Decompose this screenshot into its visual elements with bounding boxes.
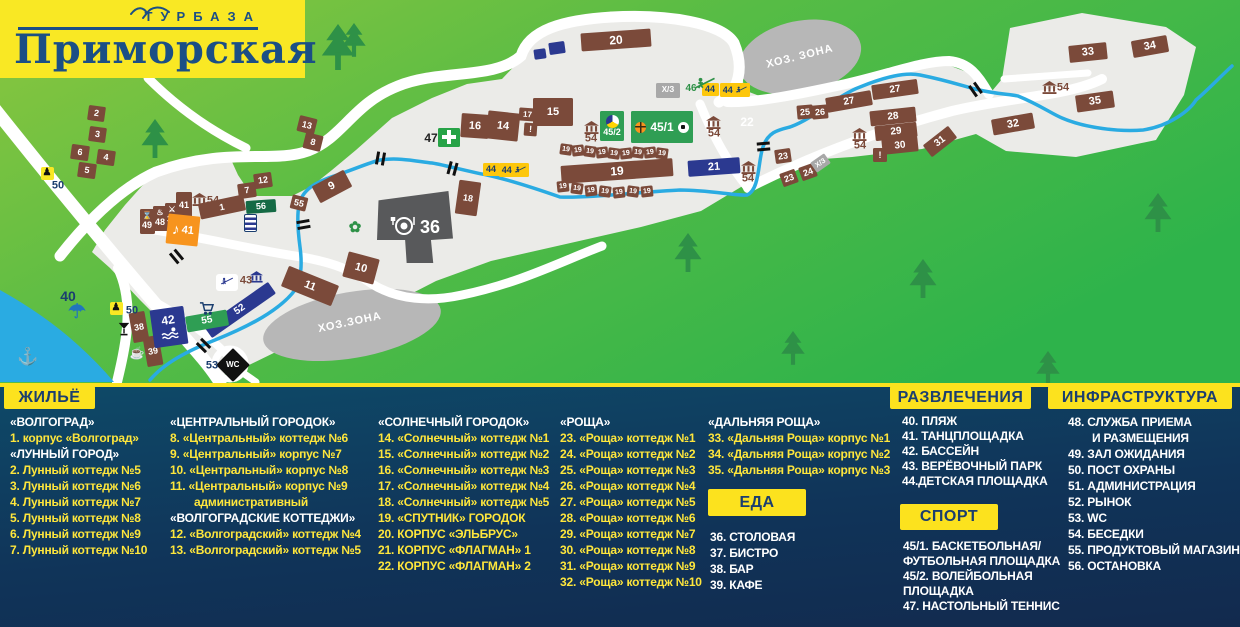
legend-item: 28. «Роща» коттедж №6 xyxy=(560,510,702,526)
slide-icon xyxy=(514,165,527,176)
legend-item: «ЦЕНТРАЛЬНЫЙ ГОРОДОК» xyxy=(170,414,361,430)
marker-label: 50 xyxy=(52,181,64,192)
marker-label: 28 xyxy=(887,110,899,121)
basketball-icon xyxy=(635,122,646,133)
building-2: 2 xyxy=(87,104,106,121)
security-post-icon: ♟ xyxy=(110,302,123,315)
legend-item: 54. БЕСЕДКИ xyxy=(1068,526,1240,542)
building-block xyxy=(548,41,566,55)
building-44: 44 xyxy=(483,163,500,176)
legend-item: 51. АДМИНИСТРАЦИЯ xyxy=(1068,478,1240,494)
building-5: 5 xyxy=(77,161,97,178)
legend-item: 36. СТОЛОВАЯ xyxy=(710,529,795,545)
legend-item: 12. «Волгоградский» коттедж №4 xyxy=(170,526,361,542)
legend-item: 7. Лунный коттедж №10 xyxy=(10,542,147,558)
building-19: 19 xyxy=(640,185,653,197)
marker-label: 25 xyxy=(800,107,811,117)
dining-icon xyxy=(390,213,416,242)
marker-label: 44 xyxy=(502,166,512,175)
music-note-icon: ♪ xyxy=(171,221,180,237)
marker-label: 49 xyxy=(142,221,152,230)
label-54: 54 xyxy=(708,129,720,140)
legend-item: 10. «Центральный» корпус №8 xyxy=(170,462,361,478)
legend-block-1: «ВОЛГОГРАД»1. корпус «Волгоград»«ЛУННЫЙ … xyxy=(10,414,147,558)
marker-label: 19 xyxy=(562,145,571,153)
building-3: 3 xyxy=(88,125,107,142)
marker-label: 18 xyxy=(462,193,473,203)
legend-block-5: «ДАЛЬНЯЯ РОЩА»33. «Дальняя Роща» корпус … xyxy=(708,414,890,478)
marker-label: 26 xyxy=(815,107,826,117)
legend-item: 24. «Роща» коттедж №2 xyxy=(560,446,702,462)
legend-item: 15. «Солнечный» коттедж №2 xyxy=(378,446,549,462)
marker-label: 19 xyxy=(610,165,624,178)
volleyball-court-45-2: 45/2 xyxy=(600,111,624,141)
swimming-pool-42: 42 xyxy=(150,306,189,348)
building-19: 19 xyxy=(570,182,583,195)
legend-item: ПЛОЩАДКА xyxy=(903,584,1060,599)
legend-item: 13. «Волгоградский» коттедж №5 xyxy=(170,542,361,558)
legend-item: 44.ДЕТСКАЯ ПЛОЩАДКА xyxy=(902,474,1048,489)
pine-tree-icon xyxy=(673,233,703,272)
marker-label: 19 xyxy=(574,146,582,154)
legend-item: 33. «Дальняя Роща» корпус №1 xyxy=(708,430,890,446)
marker-label: 30 xyxy=(894,139,906,150)
legend-item: 49. ЗАЛ ОЖИДАНИЯ xyxy=(1068,446,1240,462)
marker-label: 27 xyxy=(843,95,856,107)
marker-label: 55 xyxy=(293,197,305,208)
marker-label: 19 xyxy=(643,187,651,195)
marker-label: 19 xyxy=(629,187,638,195)
resort-map-poster: ХОЗ. ЗОНАХОЗ.ЗОНА12345671281391011141516… xyxy=(0,0,1240,627)
medical-cross-icon xyxy=(442,130,456,144)
building-19: 19 xyxy=(559,143,572,156)
logo-subtitle: ТУРБАЗА xyxy=(145,9,261,24)
label-47: 47 xyxy=(424,132,437,144)
marker-label: 24 xyxy=(802,166,814,178)
legend-item: 30. «Роща» коттедж №8 xyxy=(560,542,702,558)
climber-icon xyxy=(697,75,713,91)
label-54: 54 xyxy=(207,196,219,207)
legend-item: 40. ПЛЯЖ xyxy=(902,414,1048,429)
building-15: 15 xyxy=(533,98,573,126)
marker-label: 6 xyxy=(77,147,83,157)
playground-44: 44 xyxy=(720,83,750,97)
legend-item: 50. ПОСТ ОХРАНЫ xyxy=(1068,462,1240,478)
legend-chip-2: РАЗВЛЕЧЕНИЯ xyxy=(890,386,1031,409)
marker-label: 45/2 xyxy=(603,128,621,137)
legend-item: 21. КОРПУС «ФЛАГМАН» 1 xyxy=(378,542,549,558)
flower-icon: ✿ xyxy=(348,220,363,235)
sports-court-45-1: 45/1 xyxy=(631,111,693,143)
legend-block-3: «СОЛНЕЧНЫЙ ГОРОДОК»14. «Солнечный» котте… xyxy=(378,414,549,574)
marker-label: 50 xyxy=(126,306,138,317)
building-6: 6 xyxy=(70,143,90,160)
marker-label: 19 xyxy=(646,148,654,156)
legend-item: 55. ПРОДУКТОВЫЙ МАГАЗИН xyxy=(1068,542,1240,558)
label-54: 54 xyxy=(742,174,754,185)
bridge-marks xyxy=(296,217,311,230)
marker-label: 34 xyxy=(1143,40,1157,53)
marker-label: 35 xyxy=(1088,95,1102,108)
legend-item: 4. Лунный коттедж №7 xyxy=(10,494,147,510)
person-icon: ♟ xyxy=(112,303,121,313)
legend-item: 52. РЫНОК xyxy=(1068,494,1240,510)
legend-chip-1: ЖИЛЬЁ xyxy=(4,386,95,409)
marker-label: 9 xyxy=(327,180,338,193)
marker-label: 54 xyxy=(742,174,754,185)
marker-label: 19 xyxy=(601,187,610,195)
marker-label: 23 xyxy=(777,151,788,161)
slide-icon xyxy=(735,85,748,96)
marker-label: 33 xyxy=(1081,46,1094,58)
marker-label: 41 xyxy=(181,224,194,236)
label-46: 46 xyxy=(685,84,696,94)
coffee-icon: ☕ xyxy=(131,347,143,359)
legend-item: «ВОЛГОГРАДСКИЕ КОТТЕДЖИ» xyxy=(170,510,361,526)
zipline-icon xyxy=(220,276,234,288)
label-54: 54 xyxy=(1057,83,1069,94)
legend-item: 5. Лунный коттедж №8 xyxy=(10,510,147,526)
building-56: 56 xyxy=(246,198,277,213)
legend-item: 3. Лунный коттедж №6 xyxy=(10,478,147,494)
legend-item: 22. КОРПУС «ФЛАГМАН» 2 xyxy=(378,558,549,574)
building-!: ! xyxy=(523,122,537,136)
label-43: 43 xyxy=(240,276,252,287)
legend-item: 26. «Роща» коттедж №4 xyxy=(560,478,702,494)
legend-item: ФУТБОЛЬНАЯ ПЛОЩАДКА xyxy=(903,554,1060,569)
marker-label: 38 xyxy=(133,322,144,333)
marker-label: 56 xyxy=(256,201,267,211)
marker-label: ! xyxy=(879,151,882,160)
legend-item: 16. «Солнечный» коттедж №3 xyxy=(378,462,549,478)
legend-item: 47. НАСТОЛЬНЫЙ ТЕННИС xyxy=(903,599,1060,614)
bridge-marks xyxy=(756,140,770,152)
marker-label: 19 xyxy=(610,149,619,157)
building-Х/З: Х/З xyxy=(656,83,680,98)
legend-item: 41. ТАНЦПЛОЩАДКА xyxy=(902,429,1048,444)
building-19: 19 xyxy=(583,145,596,158)
legend-item: административный xyxy=(170,494,361,510)
reception-icon: ♨ xyxy=(156,209,163,217)
building-14: 14 xyxy=(486,110,521,141)
cart-icon xyxy=(199,301,214,316)
legend-item: 25. «Роща» коттедж №3 xyxy=(560,462,702,478)
pine-tree-icon xyxy=(780,331,806,365)
legend-item: 39. КАФЕ xyxy=(710,577,795,593)
building-4: 4 xyxy=(96,148,116,165)
building-19: 19 xyxy=(584,184,597,196)
legend-item: 37. БИСТРО xyxy=(710,545,795,561)
legend-item: 11. «Центральный» корпус №9 xyxy=(170,478,361,494)
logo: ТУРБАЗА Приморская xyxy=(0,0,305,78)
anchor-icon: ⚓ xyxy=(20,348,37,365)
marker-label: 22 xyxy=(740,116,753,128)
legend-block-2: «ЦЕНТРАЛЬНЫЙ ГОРОДОК»8. «Центральный» ко… xyxy=(170,414,361,558)
legend-item: 42. БАССЕЙН xyxy=(902,444,1048,459)
legend-item: 2. Лунный коттедж №5 xyxy=(10,462,147,478)
label-54: 54 xyxy=(854,141,866,152)
marker-label: 44 xyxy=(486,165,496,174)
pine-tree-icon xyxy=(908,259,938,298)
marker-label: 54 xyxy=(854,141,866,152)
pine-tree-icon xyxy=(1035,351,1061,385)
marker-label: 20 xyxy=(609,34,623,47)
legend-chip-5: СПОРТ xyxy=(900,504,998,530)
marker-label: 15 xyxy=(547,107,559,118)
legend-item: 17. «Солнечный» коттедж №4 xyxy=(378,478,549,494)
marker-label: WC xyxy=(226,361,239,369)
building-19: 19 xyxy=(655,147,668,160)
legend-chip-4: ЕДА xyxy=(708,489,806,516)
marker-label: 31 xyxy=(933,134,948,149)
legend-item: 35. «Дальняя Роща» корпус №3 xyxy=(708,462,890,478)
marker-label: 23 xyxy=(783,172,795,184)
marker-label: 44 xyxy=(723,86,733,95)
marker-label: 40 xyxy=(60,289,76,303)
label-50: 50 xyxy=(52,181,64,192)
building-!: ! xyxy=(873,148,887,162)
legend-item: 27. «Роща» коттедж №5 xyxy=(560,494,702,510)
marker-label: 19 xyxy=(586,147,595,155)
swimmer-icon xyxy=(160,325,180,341)
bus-stop-icon xyxy=(244,214,257,232)
marker-label: 55 xyxy=(201,315,214,327)
building-18: 18 xyxy=(455,180,482,217)
building-33: 33 xyxy=(1068,42,1108,63)
legend-item: 32. «Роща» коттедж №10 xyxy=(560,574,702,590)
legend-chip-3: ИНФРАСТРУКТУРА xyxy=(1048,386,1232,409)
marker-label: 1 xyxy=(219,202,226,212)
marker-label: 42 xyxy=(160,313,175,327)
marker-label: 54 xyxy=(708,129,720,140)
pine-tree-icon xyxy=(341,23,367,57)
marker-label: 4 xyxy=(103,152,109,162)
label-54: 54 xyxy=(585,134,597,145)
marker-label: 53 xyxy=(206,361,218,372)
waiting-icon: ⌛ xyxy=(142,212,152,220)
legend-block-8: 45/1. БАСКЕТБОЛЬНАЯ/ФУТБОЛЬНАЯ ПЛОЩАДКА4… xyxy=(903,539,1060,614)
legend-block-7: 40. ПЛЯЖ41. ТАНЦПЛОЩАДКА42. БАССЕЙН43. В… xyxy=(902,414,1048,489)
marker-label: 13 xyxy=(301,119,313,130)
marker-label: 41 xyxy=(179,201,189,210)
building-19: 19 xyxy=(598,185,611,198)
marker-label: 27 xyxy=(889,83,901,94)
label-40: 40 xyxy=(60,289,76,303)
cocktail-icon xyxy=(117,322,131,336)
legend-item: 20. КОРПУС «ЭЛЬБРУС» xyxy=(378,526,549,542)
legend-item: 29. «Роща» коттедж №7 xyxy=(560,526,702,542)
legend-item: 14. «Солнечный» коттедж №1 xyxy=(378,430,549,446)
beach-umbrella-icon: ☂ xyxy=(67,302,87,322)
legend-item: 23. «Роща» коттедж №1 xyxy=(560,430,702,446)
marker-label: 54 xyxy=(585,134,597,145)
marker-label: Х/З xyxy=(662,86,675,94)
legend-item: 34. «Дальняя Роща» корпус №2 xyxy=(708,446,890,462)
marker-label: 16 xyxy=(469,120,482,132)
legend-item: 31. «Роща» коттедж №9 xyxy=(560,558,702,574)
building-17: 17 xyxy=(518,107,536,121)
legend-item: 53. WC xyxy=(1068,510,1240,526)
marker-label: ! xyxy=(528,124,532,133)
label-50: 50 xyxy=(126,306,138,317)
legend-block-6: 36. СТОЛОВАЯ37. БИСТРО38. БАР39. КАФЕ xyxy=(710,529,795,593)
legend-item: «ДАЛЬНЯЯ РОЩА» xyxy=(708,414,890,430)
legend-block-9: 48. СЛУЖБА ПРИЕМАИ РАЗМЕЩЕНИЯ49. ЗАЛ ОЖИ… xyxy=(1068,414,1240,574)
marker-label: 45/1 xyxy=(650,121,673,133)
legend-item: 6. Лунный коттедж №9 xyxy=(10,526,147,542)
marker-label: 3 xyxy=(94,129,100,139)
marker-label: 14 xyxy=(496,120,509,132)
playground-44: 44 xyxy=(499,163,529,177)
legend-item: 8. «Центральный» коттедж №6 xyxy=(170,430,361,446)
marker-label: 36 xyxy=(420,218,440,236)
legend-item: «ЛУННЫЙ ГОРОД» xyxy=(10,446,147,462)
dance-floor-41: ♪41 xyxy=(166,213,201,246)
marker-label: 19 xyxy=(573,184,582,192)
pine-tree-icon xyxy=(1143,193,1173,232)
building-19: 19 xyxy=(626,185,639,198)
person-icon: ♟ xyxy=(43,168,52,178)
marker-label: 12 xyxy=(257,175,268,185)
marker-label: 43 xyxy=(240,276,252,287)
building-16: 16 xyxy=(460,113,490,139)
legend-item: 56. ОСТАНОВКА xyxy=(1068,558,1240,574)
rope-park-43 xyxy=(216,274,238,291)
gazebo-icon xyxy=(1042,81,1057,94)
building-block xyxy=(533,48,546,60)
building-19: 19 xyxy=(619,147,632,159)
legend-item: 38. БАР xyxy=(710,561,795,577)
marker-label: 10 xyxy=(354,261,369,275)
marker-label: 54 xyxy=(207,196,219,207)
legend-item: «ВОЛГОГРАД» xyxy=(10,414,147,430)
logo-title: Приморская xyxy=(14,26,318,73)
marker-label: 5 xyxy=(84,165,90,175)
legend-item: 18. «Солнечный» коттедж №5 xyxy=(378,494,549,510)
pine-tree-icon xyxy=(140,119,170,158)
marker-label: 19 xyxy=(634,148,643,156)
security-post-icon: ♟ xyxy=(41,167,54,180)
marker-label: 8 xyxy=(309,137,316,147)
marker-label: 21 xyxy=(708,161,721,173)
soccer-ball-icon xyxy=(678,122,689,133)
marker-label: 19 xyxy=(622,149,630,157)
marker-label: 47 xyxy=(424,132,437,144)
marker-label: 32 xyxy=(1006,118,1020,131)
building-19: 19 xyxy=(612,186,625,198)
legend-item: 43. ВЕРЁВОЧНЫЙ ПАРК xyxy=(902,459,1048,474)
legend-item: 9. «Центральный» корпус №7 xyxy=(170,446,361,462)
marker-label: 2 xyxy=(93,108,99,118)
legend-block-4: «РОЩА»23. «Роща» коттедж №124. «Роща» ко… xyxy=(560,414,702,590)
building-12: 12 xyxy=(253,171,273,188)
marker-label: 19 xyxy=(658,149,667,157)
legend-item: 45/1. БАСКЕТБОЛЬНАЯ/ xyxy=(903,539,1060,554)
marker-label: 11 xyxy=(303,279,318,294)
marker-label: 19 xyxy=(559,182,567,190)
marker-label: 54 xyxy=(1057,83,1069,94)
marker-label: 46 xyxy=(685,84,696,94)
marker-label: 17 xyxy=(522,110,531,119)
marker-label: 19 xyxy=(598,148,606,156)
bridge-marks xyxy=(373,151,386,166)
marker-label: 19 xyxy=(587,186,595,194)
legend-item: 1. корпус «Волгоград» xyxy=(10,430,147,446)
marker-label: 29 xyxy=(890,125,902,136)
legend-item: «РОЩА» xyxy=(560,414,702,430)
legend-item: 48. СЛУЖБА ПРИЕМА xyxy=(1068,414,1240,430)
legend-item: 19. «СПУТНИК» ГОРОДОК xyxy=(378,510,549,526)
legend-item: И РАЗМЕЩЕНИЯ xyxy=(1068,430,1240,446)
building-19: 19 xyxy=(556,180,569,192)
label-53: 53 xyxy=(206,361,218,372)
legend-item: «СОЛНЕЧНЫЙ ГОРОДОК» xyxy=(378,414,549,430)
building-23: 23 xyxy=(774,148,792,164)
marker-label: 48 xyxy=(155,218,165,227)
marker-label: 7 xyxy=(244,185,250,195)
legend-item: 45/2. ВОЛЕЙБОЛЬНАЯ xyxy=(903,569,1060,584)
marker-label: 19 xyxy=(615,188,623,196)
first-aid-47 xyxy=(438,128,460,147)
marker-label: Х/З xyxy=(813,157,826,169)
